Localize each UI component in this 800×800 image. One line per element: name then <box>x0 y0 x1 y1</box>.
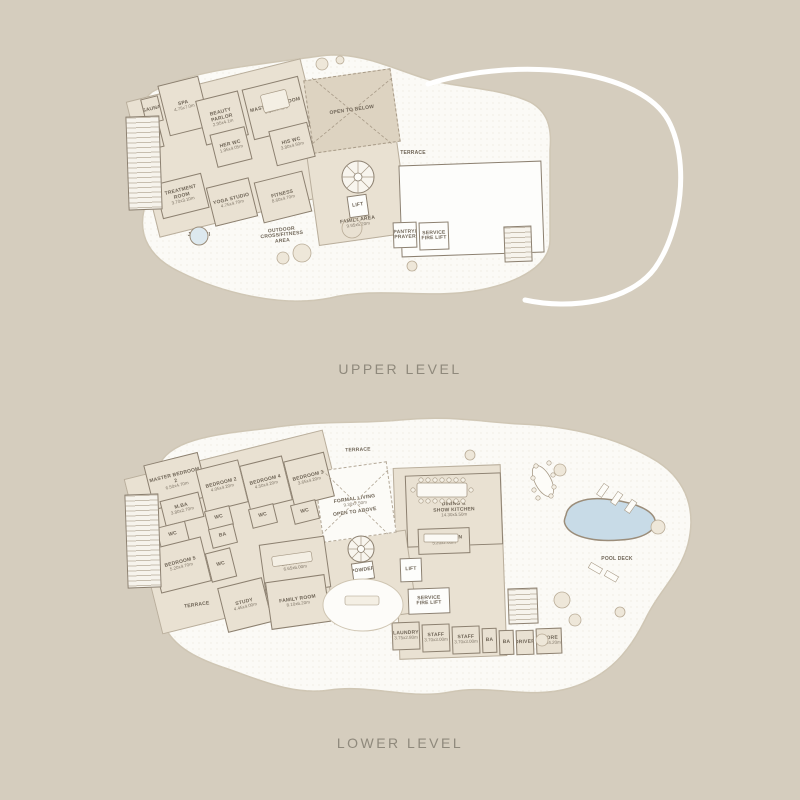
lower-level-title: LOWER LEVEL <box>0 735 800 751</box>
room-dims: 6.65x6.00m <box>283 565 307 573</box>
room-label: WC <box>300 508 310 515</box>
room-ba-1: BA <box>482 628 498 654</box>
room-label: BA <box>486 638 494 644</box>
room-label: SERVICE FIRE LIFT <box>416 595 442 607</box>
room-wet-kitchen: WET KITCHEN5.20x2.60m <box>418 527 471 555</box>
room-label: POOL DECK <box>601 557 632 563</box>
room-label: BA <box>503 640 511 646</box>
floor-plan-sheet: OPEN TO BELOWSAUNASTEAMSPA4.75x7.0mBEAUT… <box>0 0 800 800</box>
lower-plan-rooms: FORMAL LIVING9.30x7.50mMASTER BEDROOM 26… <box>0 0 800 800</box>
room-family-room: FAMILY ROOM8.10x6.20m <box>265 574 331 630</box>
room-stair-right <box>507 587 538 624</box>
room-staff-2: STAFF3.70x3.00m <box>452 626 481 655</box>
room-dims: 3.75x2.80m <box>394 636 418 642</box>
room-label: WC <box>214 514 224 521</box>
room-ba-2: BA <box>499 630 515 656</box>
room-pool-deck-label: POOL DECK <box>597 554 637 566</box>
room-label: DRIVER <box>516 639 535 645</box>
room-service-fire-lift: SERVICE FIRE LIFT <box>408 587 451 614</box>
room-label: LIFT <box>405 567 417 573</box>
room-label: WC <box>216 561 226 568</box>
room-dims: 5.20x2.60m <box>432 541 456 547</box>
room-label: WC <box>258 512 268 519</box>
room-family-lounge-label: FAMILY LOUNGE6.70x5.40m <box>333 596 393 618</box>
room-label: WC <box>168 531 178 538</box>
upper-level-title: UPPER LEVEL <box>0 361 800 377</box>
room-terrace-top-label: TERRACE <box>336 445 380 457</box>
room-dims: 6.70x5.40m <box>351 607 375 612</box>
room-label: POOL <box>603 517 618 523</box>
room-powder: POWDER <box>351 561 375 582</box>
room-label: POWDER <box>351 567 375 576</box>
room-dims: 8.10x6.20m <box>286 601 310 609</box>
room-store: STORE3.30x4.20m <box>536 628 563 655</box>
room-driver: DRIVER <box>516 630 535 656</box>
room-core-left <box>124 493 161 588</box>
room-pool-label: POOL <box>592 514 628 526</box>
room-label: TERRACE <box>345 448 371 454</box>
room-label: TERRACE <box>184 601 210 610</box>
room-dims: 14.30x5.50m <box>441 513 467 519</box>
room-dims: 3.70x3.00m <box>454 640 478 646</box>
room-laundry: LAUNDRY3.75x2.80m <box>392 622 421 651</box>
room-staff-1: STAFF3.70x3.00m <box>422 624 451 653</box>
room-dims: 3.70x3.00m <box>424 638 448 644</box>
room-label: BA <box>219 532 228 539</box>
room-dims: 3.30x4.20m <box>537 641 561 647</box>
room-lift: LIFT <box>400 558 423 583</box>
